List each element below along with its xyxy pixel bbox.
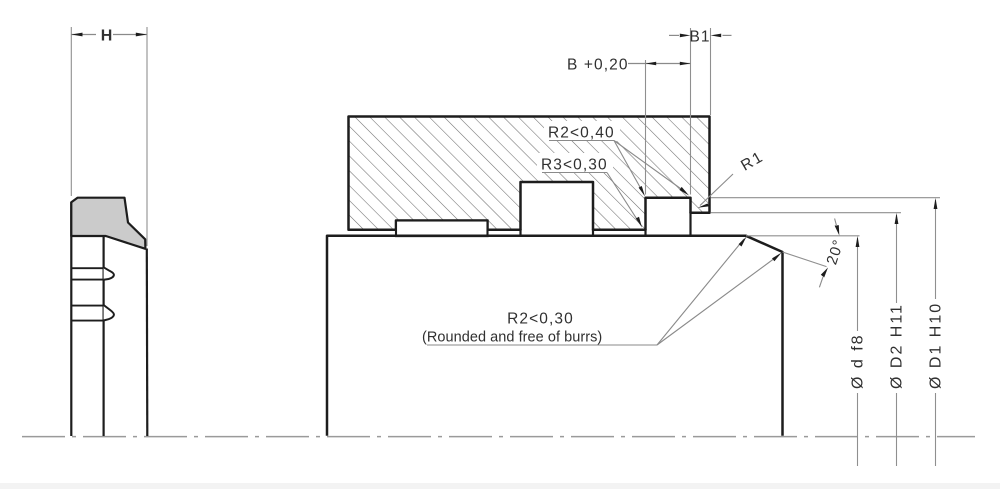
svg-text:Ø D1 H10: Ø D1 H10 — [928, 302, 945, 389]
svg-text:R2<0,40: R2<0,40 — [548, 125, 615, 142]
svg-text:Ø D2 H11: Ø D2 H11 — [889, 303, 906, 389]
svg-text:R2<0,30: R2<0,30 — [507, 311, 574, 328]
svg-text:B1: B1 — [690, 29, 711, 46]
svg-text:(Rounded and free of burrs): (Rounded and free of burrs) — [422, 330, 602, 346]
svg-text:R3<0,30: R3<0,30 — [541, 157, 608, 174]
svg-text:H: H — [101, 28, 113, 45]
svg-text:B +0,20: B +0,20 — [567, 57, 629, 74]
svg-text:Ø d f8: Ø d f8 — [850, 333, 867, 389]
